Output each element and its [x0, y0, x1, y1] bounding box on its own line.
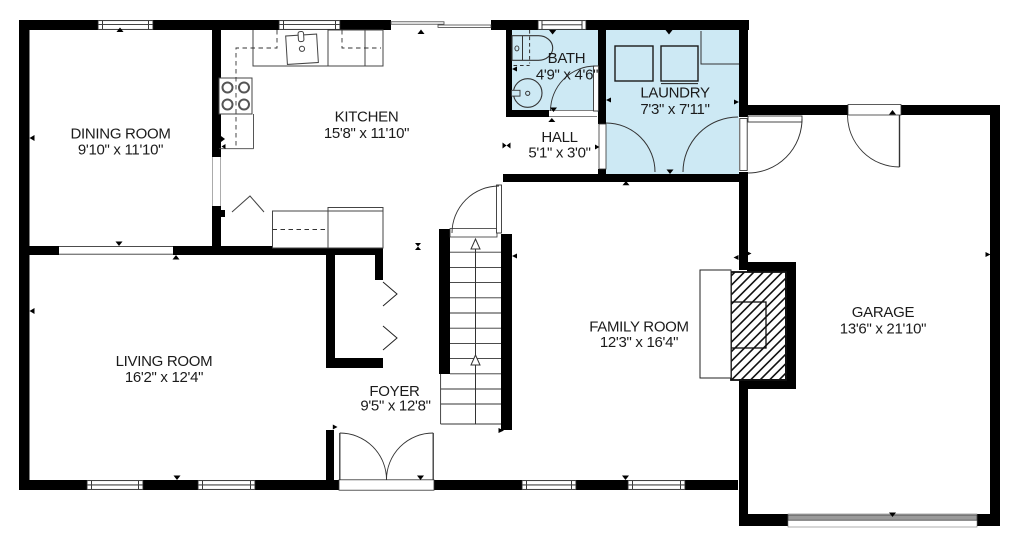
svg-text:13'6" x 21'10": 13'6" x 21'10": [840, 321, 926, 338]
svg-text:16'2" x 12'4": 16'2" x 12'4": [125, 369, 203, 386]
svg-text:LIVING ROOM: LIVING ROOM: [116, 353, 213, 370]
svg-text:HALL: HALL: [541, 129, 577, 146]
svg-text:KITCHEN: KITCHEN: [335, 109, 399, 126]
svg-text:BATH: BATH: [548, 50, 586, 67]
svg-text:DINING ROOM: DINING ROOM: [70, 126, 170, 143]
svg-text:4'9" x 4'6": 4'9" x 4'6": [536, 67, 598, 84]
svg-text:5'1" x 3'0": 5'1" x 3'0": [528, 145, 590, 162]
svg-text:12'3" x 16'4": 12'3" x 16'4": [600, 334, 678, 351]
svg-text:LAUNDRY: LAUNDRY: [640, 85, 710, 102]
svg-text:9'5" x 12'8": 9'5" x 12'8": [360, 398, 430, 415]
svg-text:15'8" x 11'10": 15'8" x 11'10": [324, 125, 409, 142]
svg-text:FAMILY ROOM: FAMILY ROOM: [589, 319, 689, 336]
svg-text:9'10" x 11'10": 9'10" x 11'10": [78, 142, 163, 159]
svg-text:GARAGE: GARAGE: [852, 304, 915, 321]
svg-text:7'3" x 7'11": 7'3" x 7'11": [640, 101, 709, 118]
